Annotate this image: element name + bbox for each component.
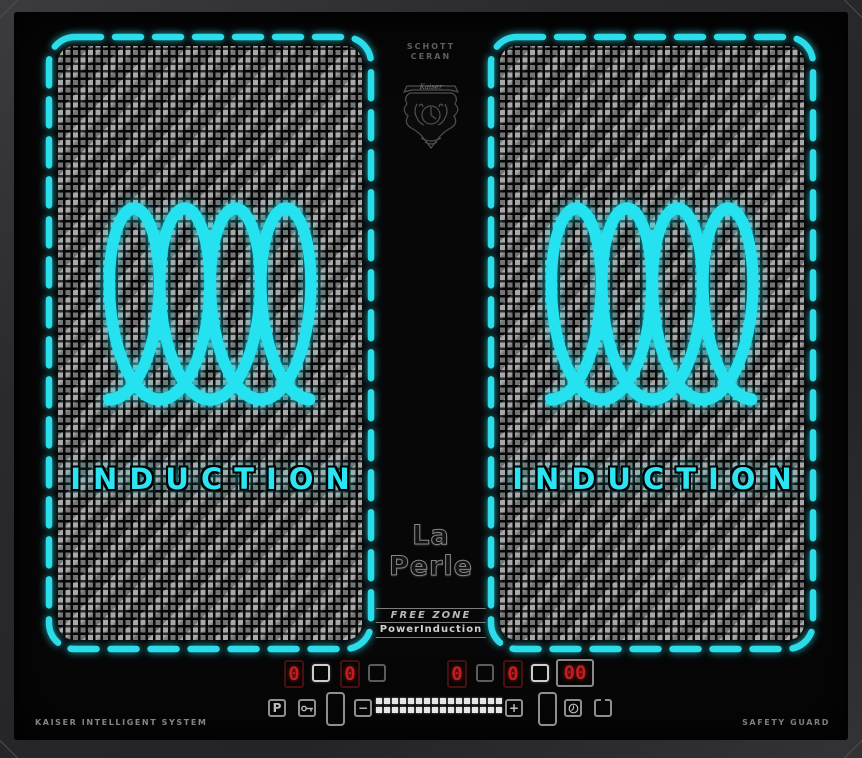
key-icon [301, 704, 314, 713]
segment-indicator-right [538, 692, 557, 726]
cooking-zone-right: INDUCTION [487, 33, 817, 653]
zone-select-pad-left-rear[interactable] [368, 664, 386, 682]
cooking-zone-left: INDUCTION [45, 33, 375, 653]
power-button[interactable] [594, 699, 612, 717]
footer-right-label: SAFETY GUARD [742, 718, 830, 727]
zone-select-pad-right-rear[interactable] [476, 664, 494, 682]
boost-button[interactable]: P [268, 699, 286, 717]
clock-icon [568, 703, 579, 714]
lock-button[interactable] [298, 699, 316, 717]
crest-wordmark: Kaiser [419, 83, 443, 91]
zone-select-pad-right-front[interactable] [531, 664, 549, 682]
power-display-right-front: 0 [503, 660, 523, 688]
model-logo: La Perle [375, 520, 487, 582]
plus-button[interactable]: + [505, 699, 523, 717]
glass-surface: INDUCTION INDUCTION SCHOTT CERAN [14, 12, 848, 740]
center-branding-column: SCHOTT CERAN Kaiser La Perle [375, 12, 487, 740]
power-display-left-front: 0 [284, 660, 304, 688]
glass-brand: SCHOTT CERAN [375, 42, 487, 62]
glass-brand-line2: CERAN [375, 52, 487, 62]
timer-display: 00 [556, 659, 594, 687]
minus-button[interactable]: − [354, 699, 372, 717]
power-slider[interactable] [376, 698, 502, 713]
segment-indicator-left [326, 692, 345, 726]
footer-left-label: KAISER INTELLIGENT SYSTEM [35, 718, 207, 727]
zone-select-pad-left-front[interactable] [312, 664, 330, 682]
induction-coil-icon [102, 198, 318, 410]
glass-brand-line1: SCHOTT [375, 42, 487, 52]
cooktop-frame: INDUCTION INDUCTION SCHOTT CERAN [0, 0, 862, 758]
induction-coil-icon [544, 198, 760, 410]
powerinduction-label: PowerInduction [376, 623, 486, 638]
kaiser-crest-icon: Kaiser [399, 80, 463, 154]
freezone-label: FREE ZONE [376, 608, 486, 623]
freezone-badge: FREE ZONE PowerInduction [376, 608, 486, 638]
timer-button[interactable] [564, 699, 582, 717]
zone-label-left: INDUCTION [45, 462, 375, 496]
zone-label-right: INDUCTION [487, 462, 817, 496]
power-display-left-rear: 0 [340, 660, 360, 688]
power-display-right-rear: 0 [447, 660, 467, 688]
power-icon [601, 696, 605, 705]
